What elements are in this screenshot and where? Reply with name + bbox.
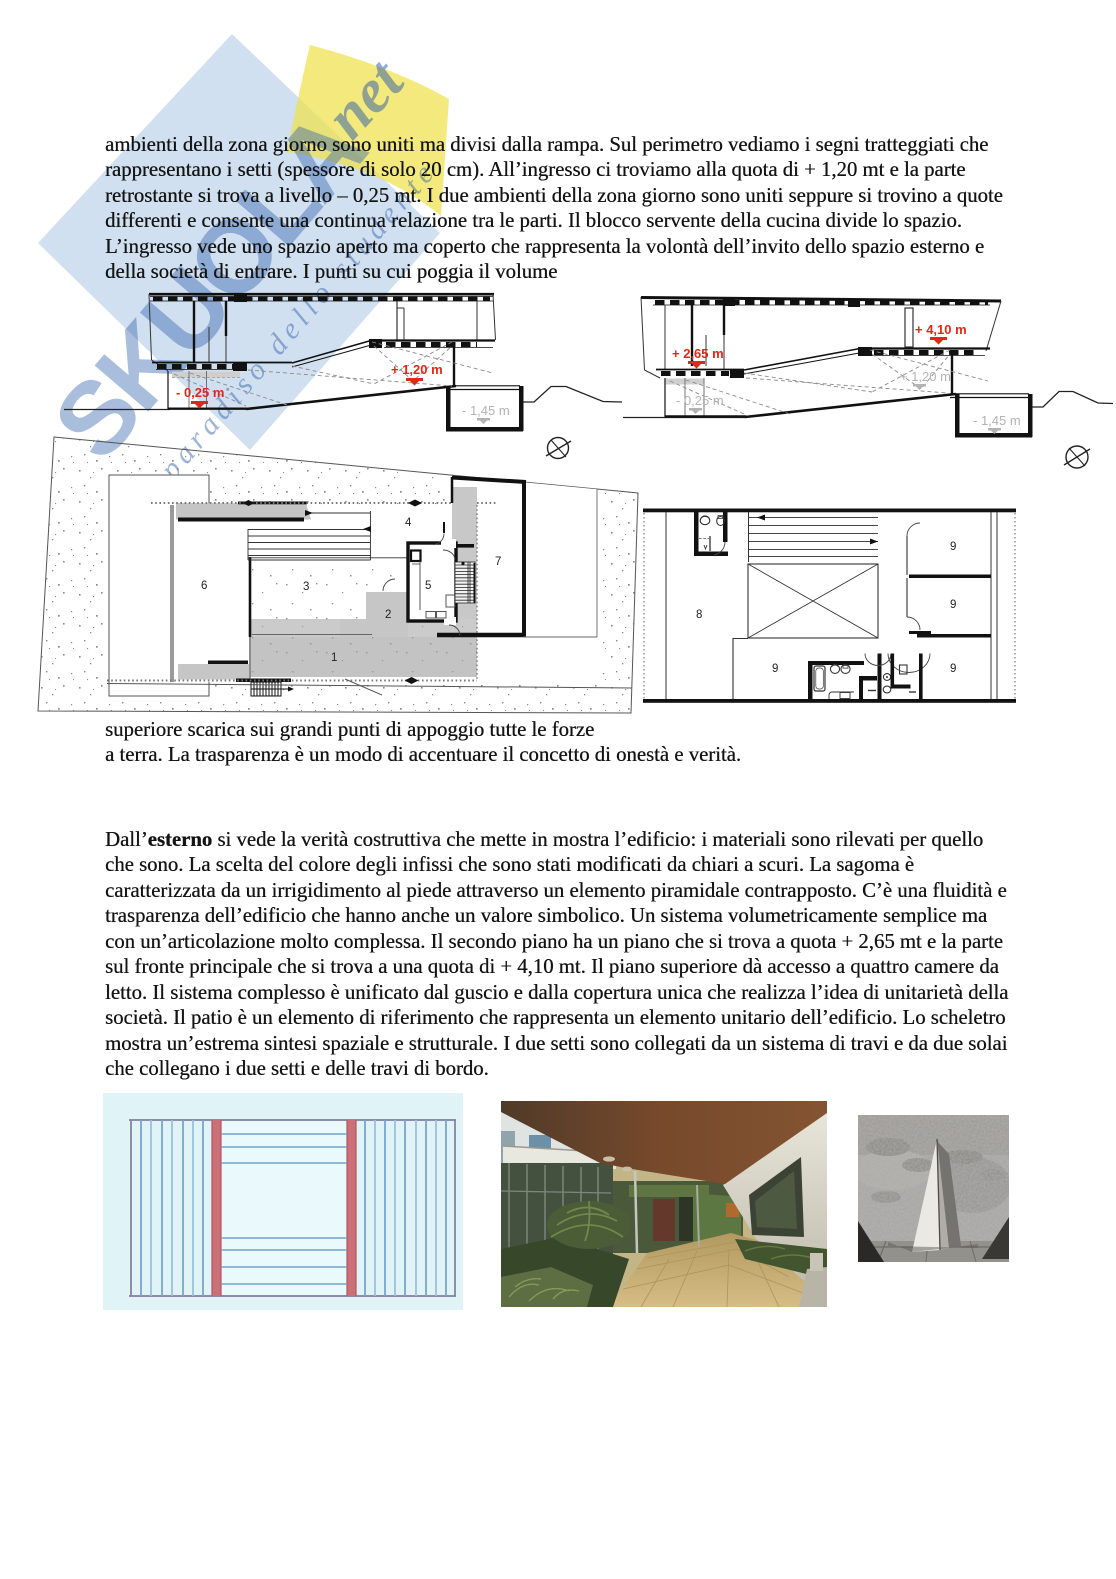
svg-text:5: 5 <box>425 580 431 592</box>
svg-text:2: 2 <box>385 609 391 621</box>
svg-text:8: 8 <box>696 609 702 621</box>
svg-text:9: 9 <box>772 663 778 675</box>
svg-text:- 1,45 m: - 1,45 m <box>462 403 510 418</box>
svg-text:9: 9 <box>950 541 956 553</box>
svg-text:6: 6 <box>201 580 207 592</box>
svg-text:+ 2,65 m: + 2,65 m <box>672 346 724 361</box>
svg-text:9: 9 <box>950 599 956 611</box>
svg-text:+ 1,20 m: + 1,20 m <box>900 369 951 384</box>
svg-text:+ 1,20 m: + 1,20 m <box>391 362 443 377</box>
svg-text:- 0,25 m: - 0,25 m <box>676 393 724 408</box>
svg-text:3: 3 <box>303 581 309 593</box>
svg-text:1: 1 <box>331 652 337 664</box>
svg-text:7: 7 <box>495 556 501 568</box>
svg-text:4: 4 <box>405 517 412 529</box>
svg-text:- 0,25 m: - 0,25 m <box>176 385 224 400</box>
svg-text:+ 4,10 m: + 4,10 m <box>915 322 967 337</box>
svg-text:- 1,45 m: - 1,45 m <box>973 413 1021 428</box>
svg-text:9: 9 <box>950 663 956 675</box>
